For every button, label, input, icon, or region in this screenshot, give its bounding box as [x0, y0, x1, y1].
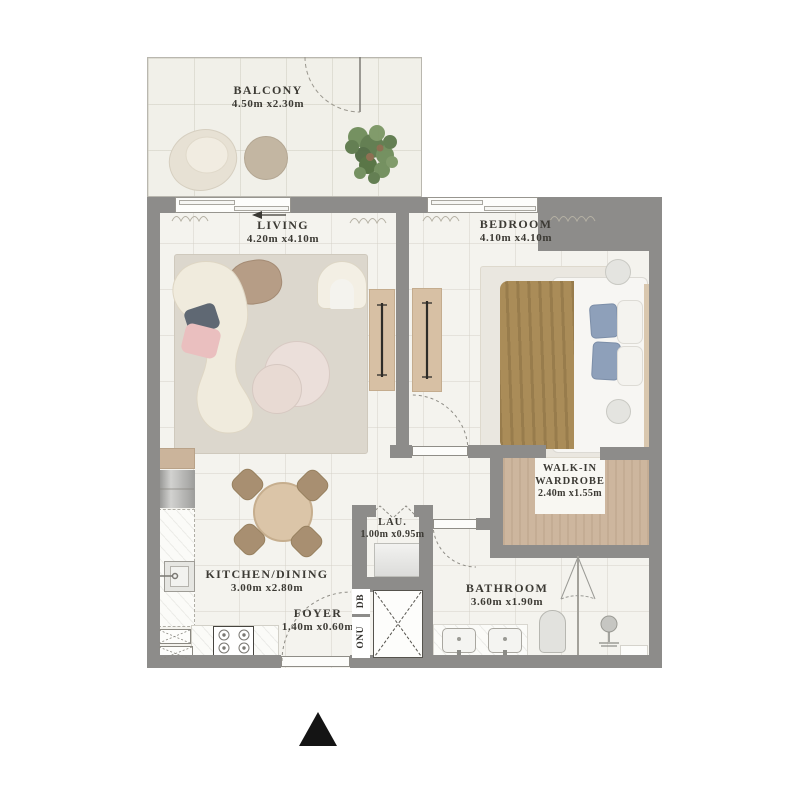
kitchen-dims: 3.00m x2.80m — [187, 582, 347, 596]
bathroom-dims: 3.60m x1.90m — [427, 596, 587, 610]
fridge — [158, 470, 195, 508]
pillow-blue-1 — [589, 303, 619, 339]
wall-bottom-left — [147, 655, 281, 668]
coffee-table-small — [252, 364, 302, 414]
bedroom-window-pane-1 — [431, 200, 483, 205]
washing-machine — [374, 543, 420, 577]
living-dims: 4.20m x4.10m — [203, 233, 363, 247]
room-label-laundry: LAU. 1.00m x0.95m — [340, 516, 445, 542]
bedroom-name: BEDROOM — [436, 217, 596, 232]
wall-wardrobe-bottom — [490, 545, 662, 558]
room-label-balcony: BALCONY 4.50m x2.30m — [188, 83, 348, 112]
room-label-living: LIVING 4.20m x4.10m — [203, 218, 363, 247]
wardrobe-dims: 2.40m x1.55m — [520, 488, 620, 501]
room-label-bedroom: BEDROOM 4.10m x4.10m — [436, 217, 596, 246]
bed-blanket — [500, 281, 574, 449]
foyer-name: FOYER — [238, 606, 398, 621]
wall-left — [147, 197, 160, 668]
bedroom-window-pane-2 — [484, 206, 536, 211]
wall-right — [649, 197, 662, 668]
arch-chair-seat-cutout — [330, 279, 354, 309]
tv-console-bedroom — [412, 288, 442, 392]
wall-living-bedroom-divider — [396, 197, 409, 449]
balcony-dims: 4.50m x2.30m — [188, 98, 348, 112]
balcony-floor — [147, 57, 422, 197]
toilet — [539, 610, 566, 653]
room-label-foyer: FOYER 1.40m x0.60m — [238, 606, 398, 635]
kitchen-counter-wood — [158, 448, 195, 469]
room-label-bathroom: BATHROOM 3.60m x1.90m — [427, 581, 587, 610]
sliding-door-living — [175, 197, 291, 213]
living-name: LIVING — [203, 218, 363, 233]
balcony-name: BALCONY — [188, 83, 348, 98]
db-label: DB — [352, 589, 370, 614]
wall-bedroom-door-jamb-left — [390, 445, 412, 458]
nightstand-bottom — [606, 399, 631, 424]
base-cabinet-1 — [158, 629, 191, 644]
pillow-white-2 — [617, 346, 643, 386]
wall-bedroom-door-jamb-right — [468, 445, 546, 458]
laundry-dims: 1.00m x0.95m — [340, 529, 445, 542]
wall-bathroom-door-jamb — [476, 518, 492, 530]
wardrobe-name: WALK-IN WARDROBE — [520, 462, 620, 488]
foyer-dims: 1.40m x0.60m — [238, 621, 398, 635]
sliding-door-pane-1 — [179, 200, 235, 205]
floor-plan-canvas: BALCONY 4.50m x2.30m LIVING 4.20m x4.10m… — [0, 0, 800, 800]
onu-text: ONU — [356, 626, 366, 649]
north-arrow-icon — [299, 712, 337, 746]
balcony-side-table — [244, 136, 288, 180]
pillow-white-1 — [617, 300, 643, 344]
room-label-wardrobe: WALK-IN WARDROBE 2.40m x1.55m — [520, 462, 620, 501]
bedroom-window — [427, 197, 538, 213]
bathroom-name: BATHROOM — [427, 581, 587, 596]
wall-wardrobe-left — [490, 445, 503, 558]
wall-bedroom-ledge — [600, 447, 662, 460]
db-text: DB — [356, 594, 366, 608]
entry-door-leaf — [281, 656, 350, 667]
laundry-name: LAU. — [340, 516, 445, 529]
room-label-kitchen: KITCHEN/DINING 3.00m x2.80m — [187, 567, 347, 596]
nightstand-top — [605, 259, 631, 285]
bedroom-door-leaf — [412, 446, 468, 456]
kitchen-name: KITCHEN/DINING — [187, 567, 347, 582]
tv-console-living — [369, 289, 395, 391]
bedroom-dims: 4.10m x4.10m — [436, 232, 596, 246]
onu-label: ONU — [352, 617, 370, 658]
wall-top-left — [147, 197, 175, 213]
sliding-door-pane-2 — [234, 206, 289, 211]
